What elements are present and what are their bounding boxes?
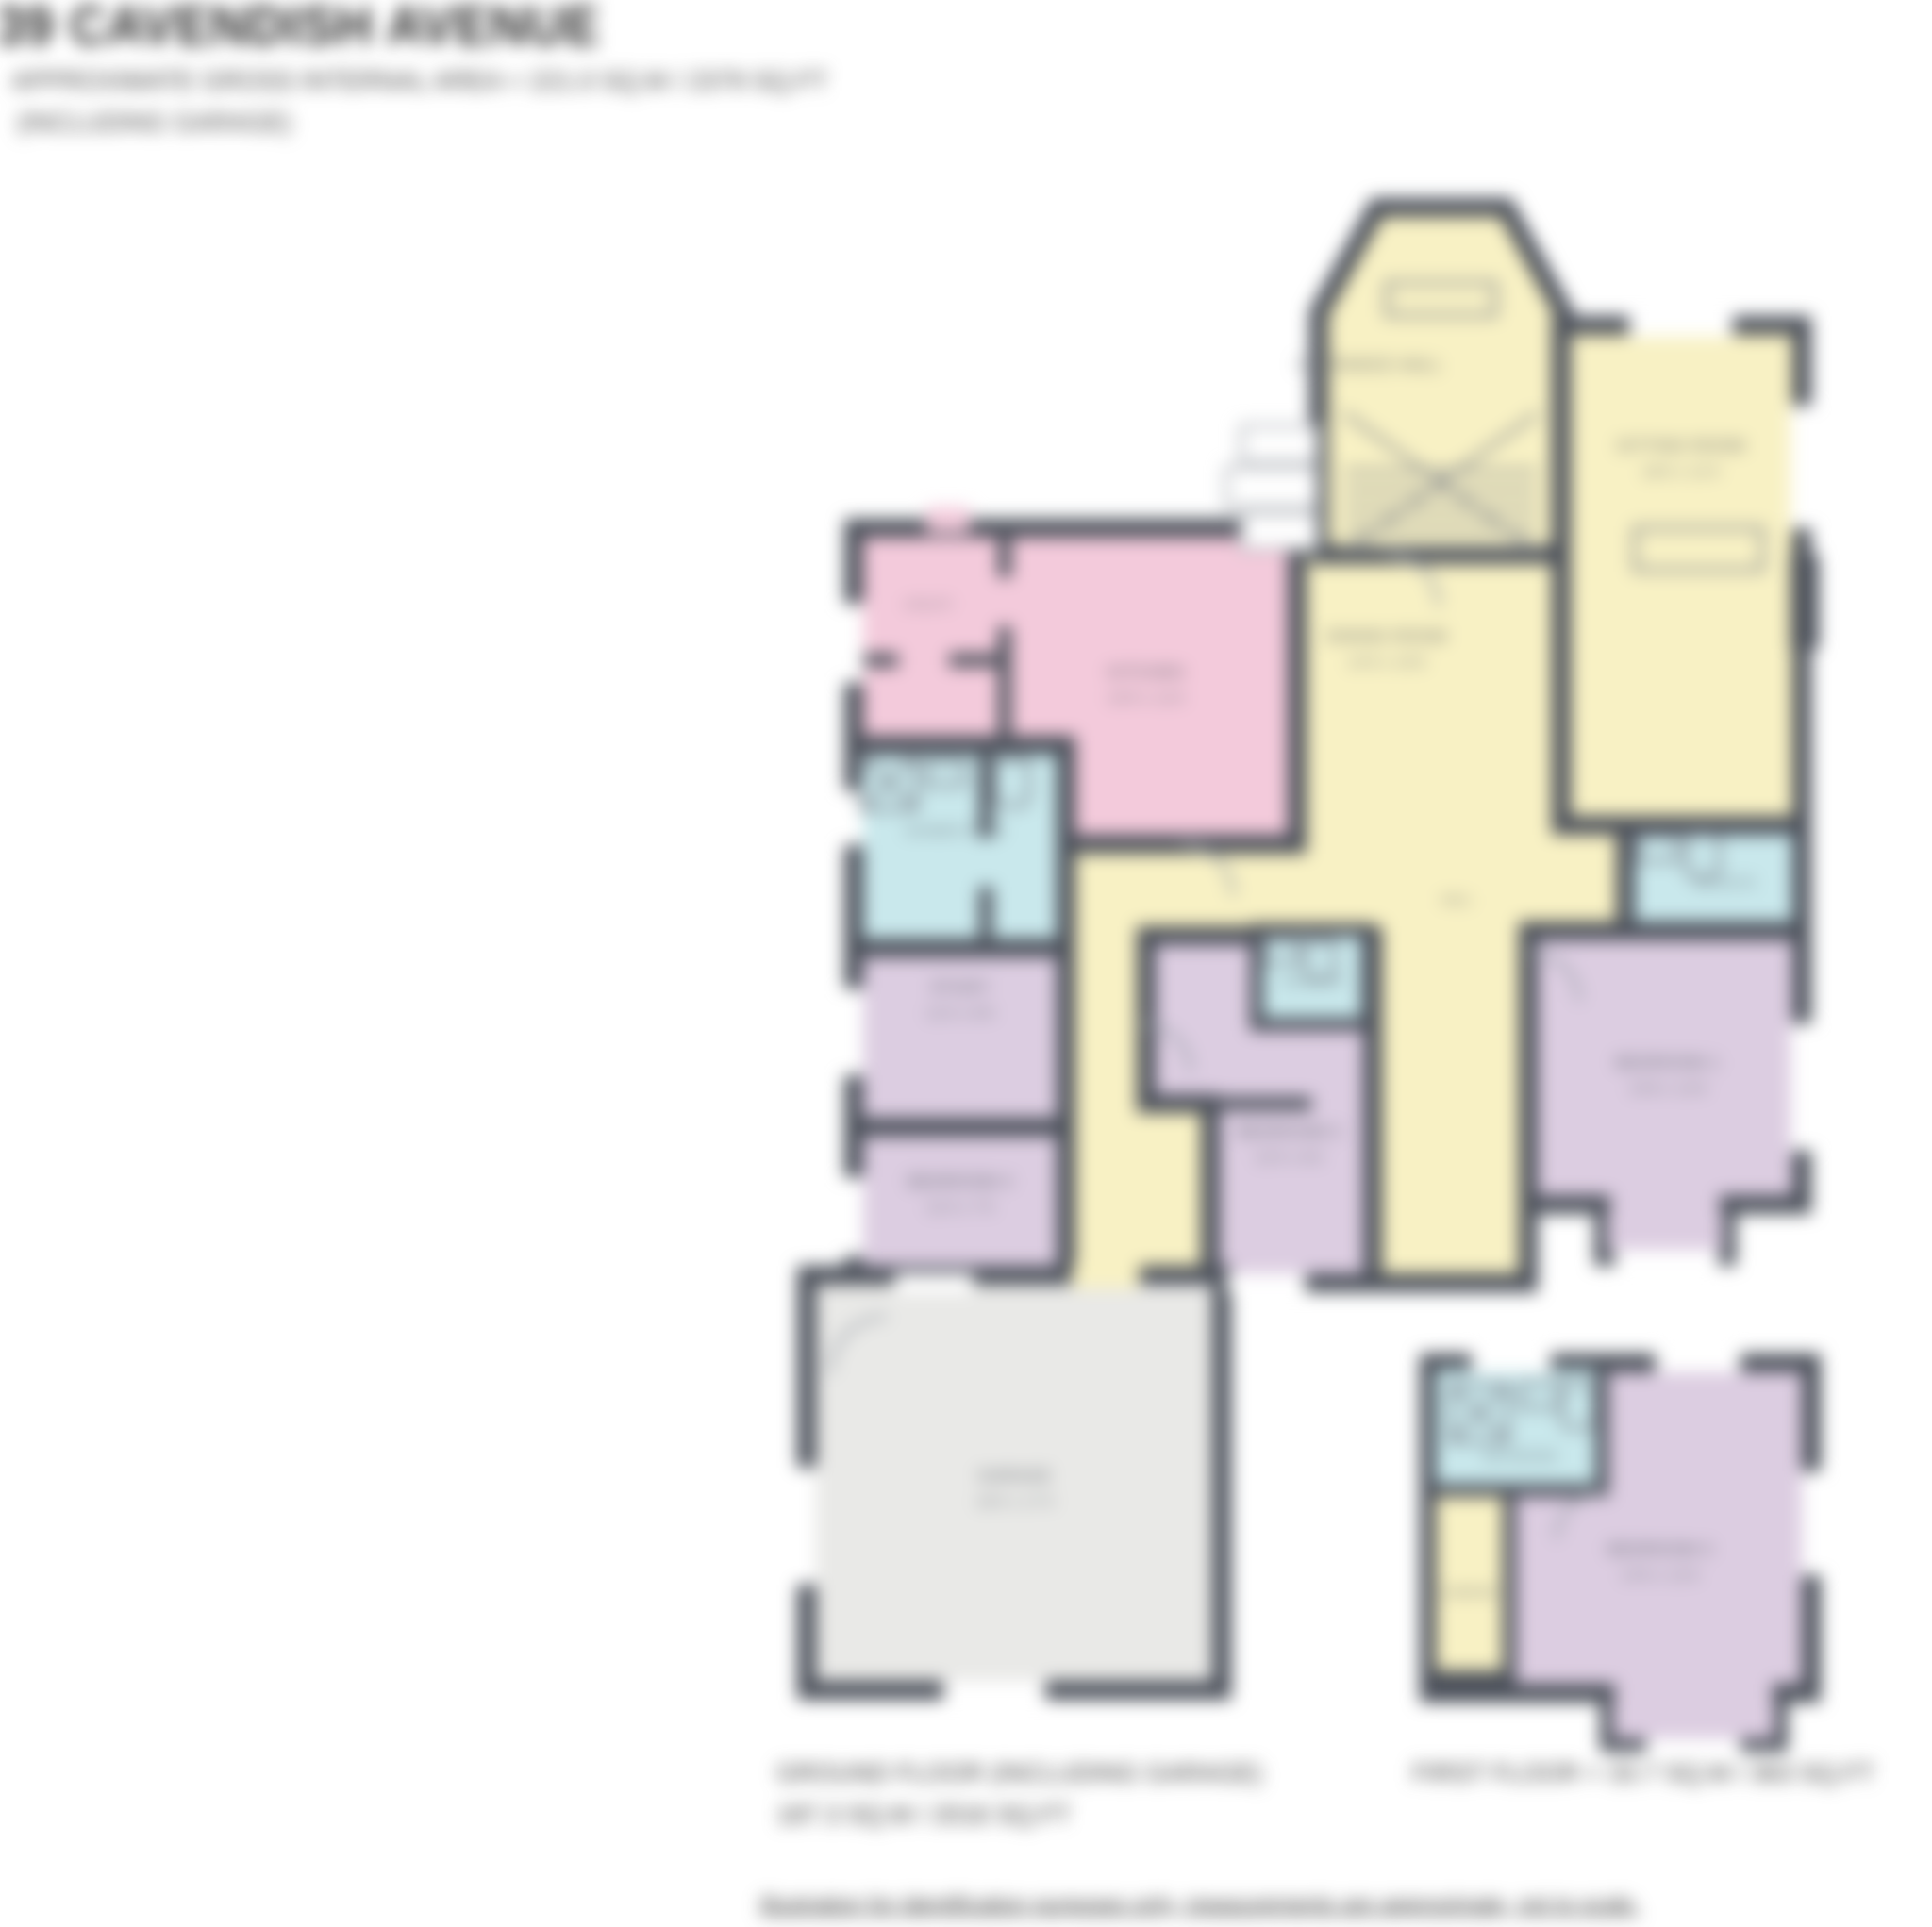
floorplan-drawing: ENTRANCE HALL SITTING ROOM 18'6 x 12'4 D… <box>0 0 1932 1927</box>
en-suite-2-label: EN-SUITE <box>1696 876 1757 889</box>
bedroom-3-label: BEDROOM 3 <box>1607 1540 1712 1558</box>
window-gap <box>1802 1471 1823 1575</box>
entrance-hall-room <box>1319 208 1564 555</box>
garage-label: GARAGE <box>978 1467 1053 1485</box>
kitchen-entry-door <box>926 507 970 532</box>
utility-label: UTILITY <box>905 598 954 611</box>
entrance-hall-label: ENTRANCE HALL <box>1297 356 1442 374</box>
window-gap <box>797 1468 816 1585</box>
window-gap <box>1656 1352 1740 1372</box>
bedroom-1-bay-opening <box>1610 1191 1720 1216</box>
en-suite-1-label: EN-SUITE <box>1283 975 1343 988</box>
window-gap <box>1226 1273 1306 1292</box>
bedroom-2-dims: 12'5 x 8'2 <box>1255 1150 1324 1166</box>
landing-label: LANDING <box>1441 1586 1498 1599</box>
bedroom-4-label: BEDROOM 4 <box>908 1172 1012 1190</box>
bathroom-label: BATHROOM <box>1485 1450 1557 1463</box>
shower-room <box>854 745 1066 948</box>
fireplace <box>1790 555 1819 649</box>
kitchen-label: KITCHEN <box>1108 663 1185 681</box>
garage-door-opening <box>1072 1266 1140 1288</box>
dining-room-label: DINING ROOM <box>1326 627 1447 645</box>
kitchen-dims: 15'9 x 11'6 <box>1108 690 1185 706</box>
study-label: STUDY <box>931 978 991 996</box>
ground-floor-caption-line2: 187.3 SQ.M / 2016 SQ.FT <box>776 1800 1071 1830</box>
step <box>1241 426 1317 462</box>
sitting-room <box>1561 325 1802 825</box>
step <box>1241 513 1317 549</box>
bedroom-1-dims: 13'8 x 12'6 <box>1629 1081 1707 1097</box>
window-gap <box>1629 316 1733 337</box>
window-gap <box>842 1177 863 1256</box>
first-floor-caption: FIRST FLOOR = 33.7 SQ.M / 363 SQ.FT <box>1412 1758 1874 1788</box>
window-gap <box>1646 1738 1740 1753</box>
bedroom-4-dims: 11'0 x 7'5 <box>926 1200 994 1216</box>
bedroom-2-label: BEDROOM 2 <box>1237 1122 1341 1140</box>
ground-floor-caption-line1: GROUND FLOOR (INCLUDING GARAGE) <box>776 1758 1262 1788</box>
window-gap <box>943 1681 1045 1700</box>
study-room <box>854 948 1066 1127</box>
garage-dims: 18'0 x 17'3 <box>976 1494 1055 1510</box>
bedroom-3-dims: 14'6 x 12'0 <box>1622 1568 1700 1584</box>
window-gap <box>1790 1023 1813 1151</box>
sitting-room-label: SITTING ROOM <box>1617 437 1746 455</box>
study-dims: 11'0 x 8'9 <box>926 1005 994 1022</box>
hall-label: HALL <box>1441 893 1474 906</box>
window-gap <box>842 988 863 1075</box>
bedroom-3-bay-opening <box>1615 1680 1773 1704</box>
window-gap <box>1790 406 1813 528</box>
window-gap <box>894 1273 974 1292</box>
sitting-room-dims: 18'6 x 12'4 <box>1642 464 1721 480</box>
step <box>1226 468 1317 507</box>
disclaimer-text: Illustration for identification purposes… <box>759 1892 1640 1919</box>
floorplan-page: 39 CAVENDISH AVENUE APPROXIMATE GROSS IN… <box>0 0 1932 1927</box>
window-gap <box>842 604 863 683</box>
shower-room-label: SHOWER ROOM <box>905 824 1005 838</box>
dining-room-dims: 14'9 x 10'6 <box>1348 655 1426 671</box>
exterior-steps-icon <box>1226 426 1317 549</box>
landing-area <box>1429 1490 1509 1677</box>
window-gap <box>1615 1250 1719 1267</box>
bedroom-1-label: BEDROOM 1 <box>1615 1054 1720 1071</box>
window-gap <box>1472 1352 1551 1372</box>
